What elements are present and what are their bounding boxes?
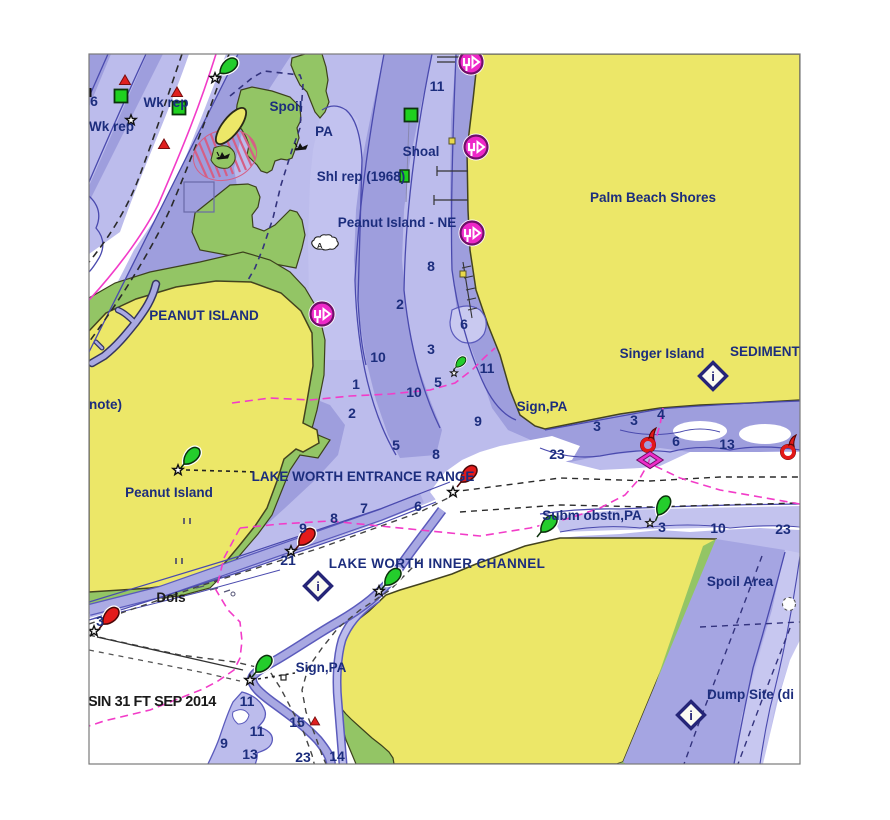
svg-text:3: 3 [658,519,666,535]
svg-text:23: 23 [775,521,791,537]
svg-text:Peanut Island - NE: Peanut Island - NE [338,215,457,230]
svg-text:4: 4 [657,406,665,422]
svg-text:Dump Site (di: Dump Site (di [707,687,794,702]
svg-text:15: 15 [289,714,305,730]
svg-text:5: 5 [392,437,400,453]
svg-text:LAKE WORTH ENTRANCE RANGE: LAKE WORTH ENTRANCE RANGE [252,469,475,484]
svg-text:PA: PA [315,124,333,139]
svg-text:2: 2 [348,405,356,421]
svg-text:PEANUT ISLAND: PEANUT ISLAND [149,308,259,323]
svg-text:8: 8 [432,446,440,462]
svg-text:14: 14 [329,748,345,764]
svg-text:7: 7 [360,500,368,516]
svg-text:9: 9 [299,520,307,536]
svg-text:Wk rep: Wk rep [89,119,134,134]
svg-text:6: 6 [460,316,468,332]
svg-text:10: 10 [406,384,422,400]
svg-text:Sign,PA: Sign,PA [517,399,568,414]
svg-text:13: 13 [719,436,735,452]
svg-text:5: 5 [434,374,442,390]
svg-text:11: 11 [240,693,255,709]
svg-text:23: 23 [295,749,311,765]
svg-text:8: 8 [427,258,435,274]
svg-text:SIN 31 FT SEP 2014: SIN 31 FT SEP 2014 [88,694,216,710]
svg-text:Dols: Dols [156,590,185,605]
svg-text:9: 9 [474,413,482,429]
svg-text:Wk rep: Wk rep [143,95,188,110]
svg-text:Subm obstn,PA: Subm obstn,PA [542,508,642,523]
svg-text:Shl rep (1968): Shl rep (1968) [317,169,406,184]
svg-text:note): note) [89,397,122,412]
svg-text:10: 10 [710,520,726,536]
svg-text:Spoil: Spoil [270,99,303,114]
svg-text:LAKE WORTH INNER CHANNEL: LAKE WORTH INNER CHANNEL [329,556,546,571]
svg-text:Palm Beach Shores: Palm Beach Shores [590,190,716,205]
svg-text:2: 2 [396,296,404,312]
svg-text:3: 3 [593,418,601,434]
svg-text:10: 10 [370,349,386,365]
svg-text:9: 9 [220,735,228,751]
svg-text:Singer Island: Singer Island [620,346,705,361]
svg-text:SEDIMENT: SEDIMENT [730,344,801,359]
svg-text:Shoal: Shoal [403,144,440,159]
svg-text:Peanut Island: Peanut Island [125,485,213,500]
svg-text:11: 11 [480,360,495,376]
svg-text:Spoil Area: Spoil Area [707,574,774,589]
svg-text:11: 11 [250,723,265,739]
svg-text:3: 3 [427,341,435,357]
svg-text:3: 3 [96,613,104,629]
svg-text:6: 6 [672,433,680,449]
svg-text:6: 6 [90,93,98,109]
svg-text:3: 3 [630,412,638,428]
svg-text:Sign,PA: Sign,PA [296,660,347,675]
svg-text:A: A [317,241,323,250]
svg-text:21: 21 [280,552,296,568]
svg-text:6: 6 [414,498,422,514]
svg-text:13: 13 [242,746,258,762]
svg-text:1: 1 [352,376,360,392]
svg-text:11: 11 [430,78,445,94]
svg-text:8: 8 [330,510,338,526]
svg-text:23: 23 [549,446,565,462]
